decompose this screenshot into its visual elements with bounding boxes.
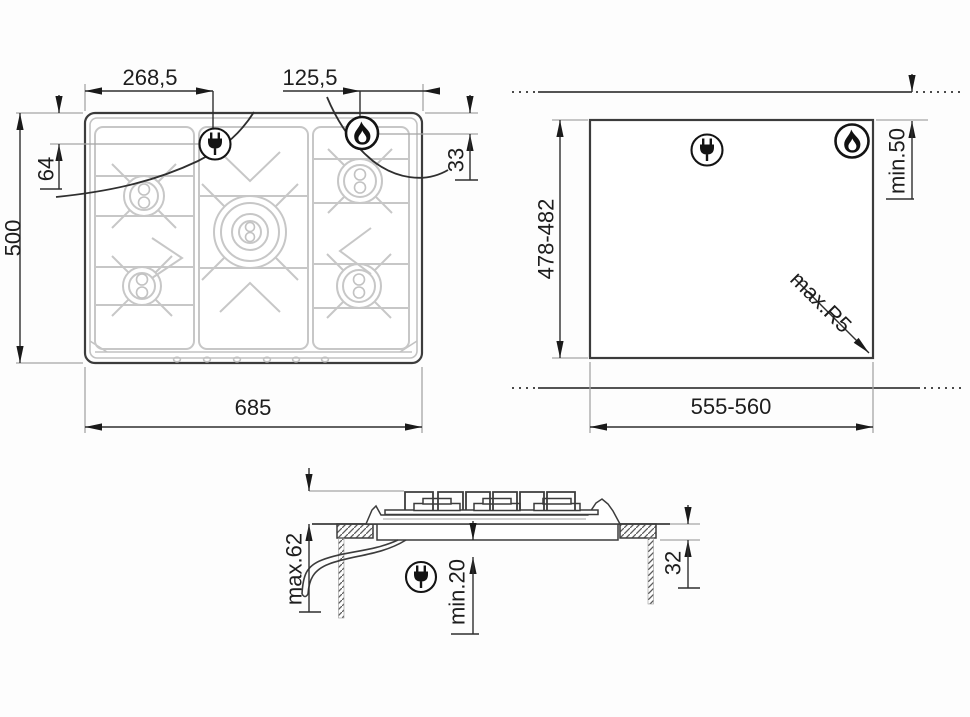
power-cable (302, 540, 406, 597)
worktop-section-left (337, 524, 373, 538)
dim-wall-clearance-label: min.50 (885, 128, 910, 194)
dim-cutout-depth-label: 478-482 (534, 199, 559, 280)
worktop-section-right (620, 524, 656, 538)
dim-cutout-width-label: 555-560 (691, 394, 772, 419)
plug-icon (692, 135, 723, 166)
dim-left-to-plug-label: 268,5 (122, 65, 177, 90)
plug-icon (406, 562, 436, 592)
dim-recess-depth-label: 32 (661, 551, 686, 575)
dim-hob-width: 685 (85, 395, 422, 431)
flame-icon (346, 117, 378, 149)
installation-diagram: 268,5 125,5 64 33 (0, 0, 970, 717)
section-view: max.62 min.20 32 (282, 468, 701, 634)
hob-recess-box (377, 524, 618, 540)
hob-top-view: 268,5 125,5 64 33 (1, 65, 479, 433)
dim-top-to-plug: 64 (34, 95, 63, 189)
dim-top-to-plug-label: 64 (34, 157, 59, 181)
cabinet-wall-left (339, 538, 345, 618)
dim-hob-depth-label: 500 (1, 220, 26, 257)
dim-max-below-worktop-label: max.62 (282, 533, 307, 605)
dim-cutout-width: 555-560 (590, 394, 873, 431)
dim-min-clearance-label: min.20 (445, 559, 470, 625)
dim-flame-to-edge-label: 125,5 (282, 65, 337, 90)
worktop-cutout-view: 478-482 min.50 max.R5 555-560 (512, 74, 964, 433)
dim-top-to-flame: 33 (444, 95, 479, 180)
cabinet-wall-right (648, 538, 654, 604)
dim-hob-width-label: 685 (235, 395, 272, 420)
dim-hob-depth: 500 (1, 113, 26, 363)
flame-icon (836, 125, 869, 158)
diagram-svg: 268,5 125,5 64 33 (0, 0, 970, 717)
dim-flame-to-edge: 125,5 (282, 65, 440, 116)
plug-icon (200, 129, 231, 160)
dim-max-below-worktop: max.62 (282, 468, 322, 612)
dim-top-to-flame-label: 33 (444, 148, 469, 172)
dim-recess-depth: 32 (661, 505, 701, 588)
hob-outline (85, 113, 422, 363)
dim-cutout-depth: 478-482 (534, 120, 564, 358)
